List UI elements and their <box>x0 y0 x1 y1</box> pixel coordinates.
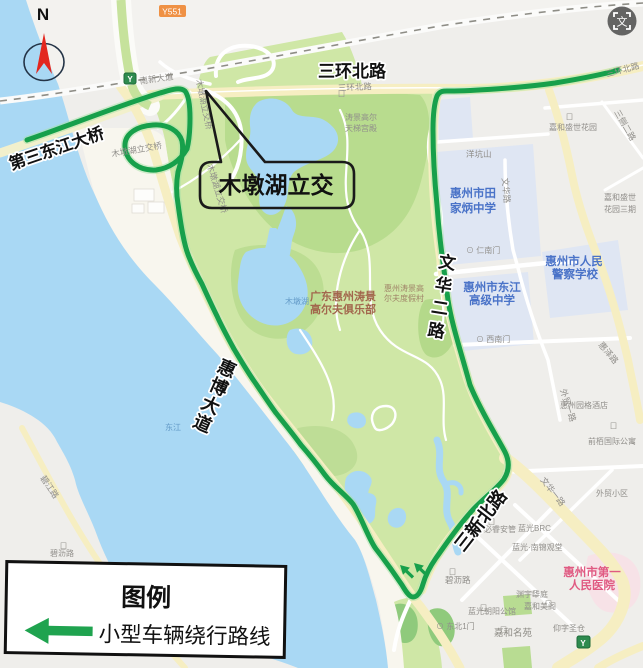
svg-text:Y: Y <box>127 75 133 84</box>
svg-text:三环北路: 三环北路 <box>318 61 387 81</box>
svg-text:广东惠州涛景: 广东惠州涛景 <box>310 289 376 303</box>
svg-text:警察学校: 警察学校 <box>551 267 598 281</box>
svg-text:外贸小区: 外贸小区 <box>596 488 628 498</box>
svg-text:囗: 囗 <box>566 113 573 121</box>
svg-text:⊙ 西南门: ⊙ 西南门 <box>476 334 510 344</box>
svg-text:惠州市人民: 惠州市人民 <box>545 254 603 268</box>
svg-text:木墩湖: 木墩湖 <box>285 296 309 306</box>
svg-text:碧沥路: 碧沥路 <box>445 575 471 585</box>
svg-text:⊙ 东北1门: ⊙ 东北1门 <box>436 621 475 631</box>
svg-text:囗: 囗 <box>532 590 539 598</box>
svg-text:仰字圣仓: 仰字圣仓 <box>553 623 585 633</box>
svg-text:涛景高尔: 涛景高尔 <box>345 112 377 122</box>
svg-text:家炳中学: 家炳中学 <box>450 201 496 215</box>
svg-text:⊙ 仁南门: ⊙ 仁南门 <box>466 245 500 255</box>
svg-text:东江: 东江 <box>165 422 181 432</box>
svg-text:惠州园格酒店: 惠州园格酒店 <box>560 400 608 410</box>
svg-text:高尔夫俱乐部: 高尔夫俱乐部 <box>310 302 376 316</box>
svg-text:前栢国际公寓: 前栢国际公寓 <box>588 436 636 446</box>
svg-text:惠州市第一: 惠州市第一 <box>563 565 621 579</box>
svg-text:蓝光朝阳公馆: 蓝光朝阳公馆 <box>468 606 516 616</box>
svg-text:囗: 囗 <box>60 542 67 550</box>
svg-text:蓝光BRC: 蓝光BRC <box>518 523 551 533</box>
svg-text:惠州市田: 惠州市田 <box>450 186 496 200</box>
svg-text:N: N <box>37 5 49 24</box>
svg-text:洋坑山: 洋坑山 <box>466 149 492 159</box>
svg-text:囗: 囗 <box>338 90 345 98</box>
svg-text:囗: 囗 <box>545 600 552 608</box>
svg-text:图例: 图例 <box>121 584 171 613</box>
svg-text:囗: 囗 <box>449 568 456 576</box>
svg-text:嘉和盛世: 嘉和盛世 <box>604 192 636 202</box>
svg-text:天梯宫殿: 天梯宫殿 <box>345 123 377 133</box>
svg-text:惠州市东江: 惠州市东江 <box>463 280 521 294</box>
svg-text:Y: Y <box>580 639 586 648</box>
svg-text:嘉和名苑: 嘉和名苑 <box>494 627 533 639</box>
svg-text:嘉和盛世花园: 嘉和盛世花园 <box>549 122 597 132</box>
svg-text:花园三期: 花园三期 <box>604 204 636 214</box>
svg-text:小型车辆绕行路线: 小型车辆绕行路线 <box>98 622 270 649</box>
svg-text:华: 华 <box>434 274 454 296</box>
svg-text:文: 文 <box>617 15 628 29</box>
svg-text:Y551: Y551 <box>162 7 182 17</box>
svg-text:蓝光·南锦观堂: 蓝光·南锦观堂 <box>512 542 563 552</box>
svg-text:囗: 囗 <box>610 422 617 430</box>
svg-text:人民医院: 人民医院 <box>569 578 615 592</box>
svg-text:高级中学: 高级中学 <box>469 293 515 307</box>
svg-text:囗: 囗 <box>480 604 487 612</box>
svg-text:惠州涛景高: 惠州涛景高 <box>384 283 424 293</box>
svg-text:木墩湖立交: 木墩湖立交 <box>218 172 334 198</box>
svg-text:尔夫度假村: 尔夫度假村 <box>384 293 424 303</box>
svg-text:二: 二 <box>430 298 450 319</box>
